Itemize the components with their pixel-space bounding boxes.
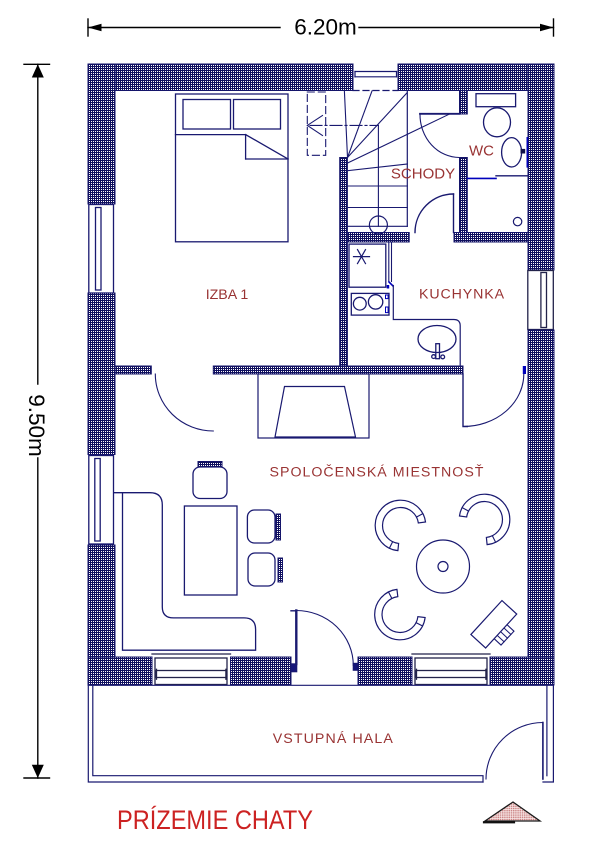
svg-text:9.50m: 9.50m — [24, 394, 49, 457]
svg-text:PRÍZEMIE CHATY: PRÍZEMIE CHATY — [117, 805, 313, 835]
svg-text:KUCHYNKA: KUCHYNKA — [419, 287, 505, 303]
svg-text:6.20m: 6.20m — [294, 15, 357, 40]
svg-text:WC: WC — [469, 143, 494, 160]
svg-text:IZBA 1: IZBA 1 — [206, 287, 249, 303]
svg-text:SCHODY: SCHODY — [391, 166, 455, 183]
svg-text:SPOLOČENSKÁ MIESTNOSŤ: SPOLOČENSKÁ MIESTNOSŤ — [270, 464, 485, 481]
svg-text:VSTUPNÁ HALA: VSTUPNÁ HALA — [273, 730, 394, 747]
